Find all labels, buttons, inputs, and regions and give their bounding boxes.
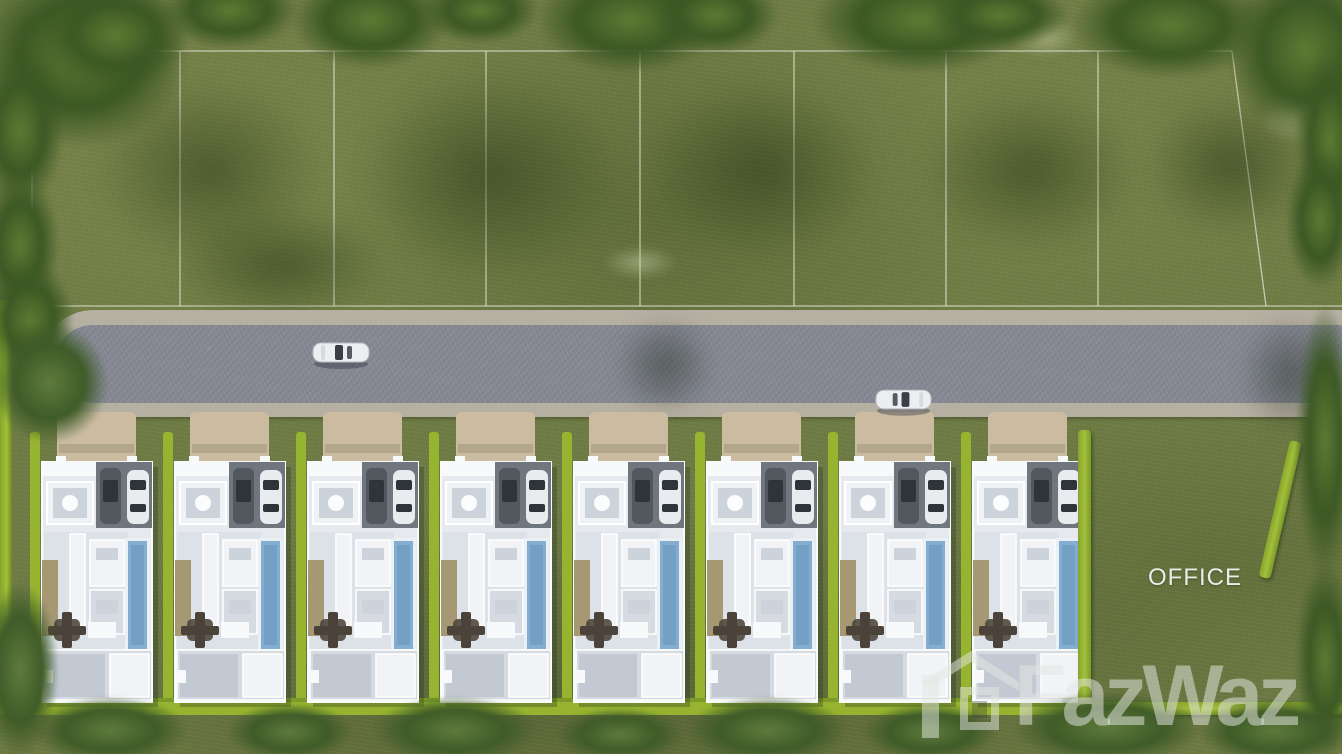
villa-plan <box>961 412 1094 717</box>
villa-side-hedge <box>961 432 971 715</box>
bedroom-mid <box>888 540 922 586</box>
parked-car-white <box>393 470 415 524</box>
hallway <box>1001 534 1016 626</box>
road-asphalt <box>54 325 1342 403</box>
villa-side-hedge <box>30 432 40 715</box>
bedroom-mid <box>755 540 789 586</box>
entry-pavers <box>990 444 1065 453</box>
villa-5 <box>562 412 695 717</box>
parked-car-dark <box>366 468 387 524</box>
hallway <box>336 534 351 626</box>
plot-line <box>1232 51 1266 306</box>
villa-side-hedge <box>562 432 572 715</box>
villa-plan <box>562 412 695 717</box>
site-plan-scene: OFFICE FazWaz <box>0 0 1342 754</box>
villa-6 <box>695 412 828 717</box>
office-label: OFFICE <box>1148 564 1242 592</box>
hallway <box>602 534 617 626</box>
hallway <box>868 534 883 626</box>
parked-car-white <box>260 470 282 524</box>
villa-plan <box>296 412 429 717</box>
villa-2 <box>163 412 296 717</box>
office-plot: OFFICE <box>1078 412 1342 717</box>
hallway <box>469 534 484 626</box>
villa-plan <box>695 412 828 717</box>
entry-pavers <box>458 444 533 453</box>
parked-car-dark <box>100 468 121 524</box>
parked-car-white <box>792 470 814 524</box>
parked-car-dark <box>1031 468 1052 524</box>
parked-car-dark <box>898 468 919 524</box>
parked-car-white <box>127 470 149 524</box>
hallway <box>735 534 750 626</box>
villa-plan <box>163 412 296 717</box>
entry-pavers <box>591 444 666 453</box>
bedroom-mid <box>1021 540 1055 586</box>
entry-pavers <box>192 444 267 453</box>
parked-car-dark <box>499 468 520 524</box>
parked-car-white <box>1058 470 1080 524</box>
white-car-right <box>874 386 933 416</box>
road <box>40 310 1342 417</box>
left-perimeter-hedge <box>0 300 12 715</box>
villa-side-hedge <box>429 432 439 715</box>
entry-pavers <box>325 444 400 453</box>
office-bottom-hedge <box>1078 702 1342 715</box>
entry-pavers <box>59 444 134 453</box>
villa-1 <box>30 412 163 717</box>
villa-side-hedge <box>695 432 705 715</box>
driveway <box>988 412 1067 462</box>
bedroom-mid <box>622 540 656 586</box>
driveway <box>190 412 269 462</box>
bedroom-mid <box>489 540 523 586</box>
villa-4 <box>429 412 562 717</box>
villa-8 <box>961 412 1094 717</box>
bedroom-mid <box>356 540 390 586</box>
driveway <box>589 412 668 462</box>
driveway <box>456 412 535 462</box>
driveway <box>722 412 801 462</box>
parked-car-dark <box>233 468 254 524</box>
office-left-hedge <box>1078 430 1091 715</box>
hallway <box>70 534 85 626</box>
white-car-left <box>311 339 371 369</box>
driveway <box>855 412 934 462</box>
parked-car-white <box>659 470 681 524</box>
bedroom-mid <box>90 540 124 586</box>
villa-plan <box>828 412 961 717</box>
villa-side-hedge <box>828 432 838 715</box>
driveway <box>57 412 136 462</box>
parked-car-white <box>526 470 548 524</box>
driveway <box>323 412 402 462</box>
hallway <box>203 534 218 626</box>
villa-3 <box>296 412 429 717</box>
villa-side-hedge <box>163 432 173 715</box>
parked-car-dark <box>765 468 786 524</box>
bedroom-mid <box>223 540 257 586</box>
entry-pavers <box>857 444 932 453</box>
villa-plan <box>429 412 562 717</box>
villa-side-hedge <box>296 432 306 715</box>
parked-car-white <box>925 470 947 524</box>
parked-car-dark <box>632 468 653 524</box>
entry-pavers <box>724 444 799 453</box>
villa-plan <box>30 412 163 717</box>
villa-7 <box>828 412 961 717</box>
office-right-hedge <box>1259 440 1302 579</box>
